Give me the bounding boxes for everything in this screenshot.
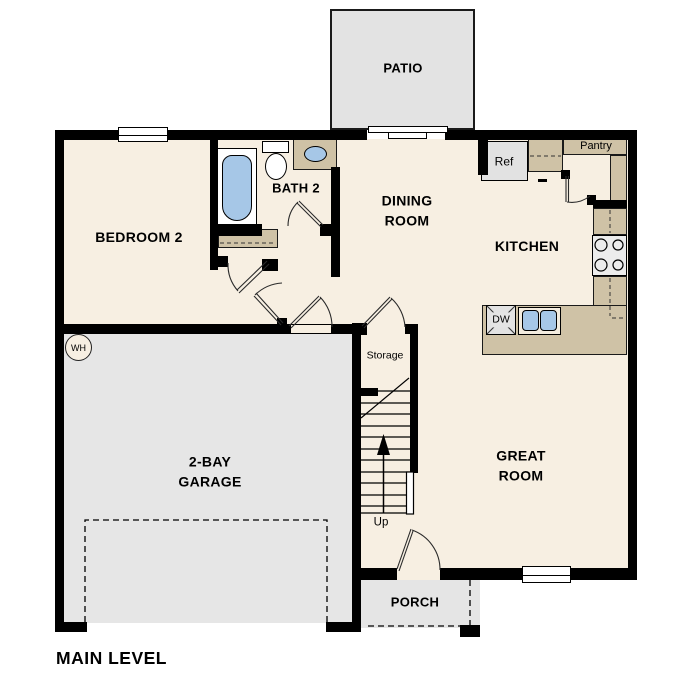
front-door-threshold (397, 568, 440, 580)
water-heater-label: WH (71, 343, 86, 353)
wall (262, 259, 278, 271)
dishwasher-label: DW (491, 312, 511, 327)
wall (277, 318, 287, 328)
water-heater: WH (65, 334, 92, 361)
window-mullion (119, 135, 167, 136)
wall (331, 167, 340, 277)
toilet-tank (262, 141, 289, 153)
right-counter-lower (593, 276, 627, 306)
wall (210, 256, 228, 267)
wall (55, 622, 87, 632)
wall (410, 334, 418, 473)
wall (361, 323, 367, 335)
floor-plan: WH (0, 0, 687, 687)
storage-label: Storage (367, 348, 404, 363)
garage-label: 2-BAY GARAGE (178, 452, 241, 493)
toilet-bowl (265, 153, 287, 180)
wall (628, 130, 637, 580)
wall (352, 323, 361, 632)
kitchen-sink-left-basin (522, 310, 539, 331)
bath-sink (304, 146, 327, 162)
bathtub (222, 155, 252, 221)
wall (55, 130, 64, 632)
stove (592, 235, 627, 276)
patio-slider-panel-inner (388, 132, 427, 139)
pantry-label: Pantry (580, 139, 612, 155)
wall (352, 388, 378, 396)
kitchen-counter-top (528, 139, 563, 172)
refrigerator-handle (538, 179, 547, 182)
wall (210, 224, 262, 236)
plan-title: MAIN LEVEL (56, 648, 167, 669)
wall (405, 324, 418, 334)
right-counter-upper (593, 208, 627, 235)
wall (593, 200, 627, 208)
wall (210, 139, 218, 270)
garage-door-threshold (290, 324, 332, 334)
great-room-label: GREAT ROOM (496, 446, 545, 487)
pantry-side-column (610, 155, 627, 201)
bath2-label: BATH 2 (272, 180, 320, 199)
wall (332, 324, 352, 334)
dining-room-label: DINING ROOM (382, 191, 433, 232)
wall (478, 130, 488, 175)
kitchen-label: KITCHEN (495, 236, 559, 256)
kitchen-sink-right-basin (540, 310, 557, 331)
up-label: Up (374, 515, 389, 532)
wall (55, 324, 290, 334)
bedroom-window (118, 127, 168, 142)
wall (460, 625, 480, 637)
wall (561, 170, 570, 179)
window-mullion (523, 575, 570, 576)
porch-label: PORCH (391, 594, 439, 613)
great-room-window (522, 566, 571, 583)
bedroom2-label: BEDROOM 2 (95, 227, 183, 247)
patio-label: PATIO (383, 60, 422, 79)
refrigerator-label: Ref (495, 153, 514, 170)
